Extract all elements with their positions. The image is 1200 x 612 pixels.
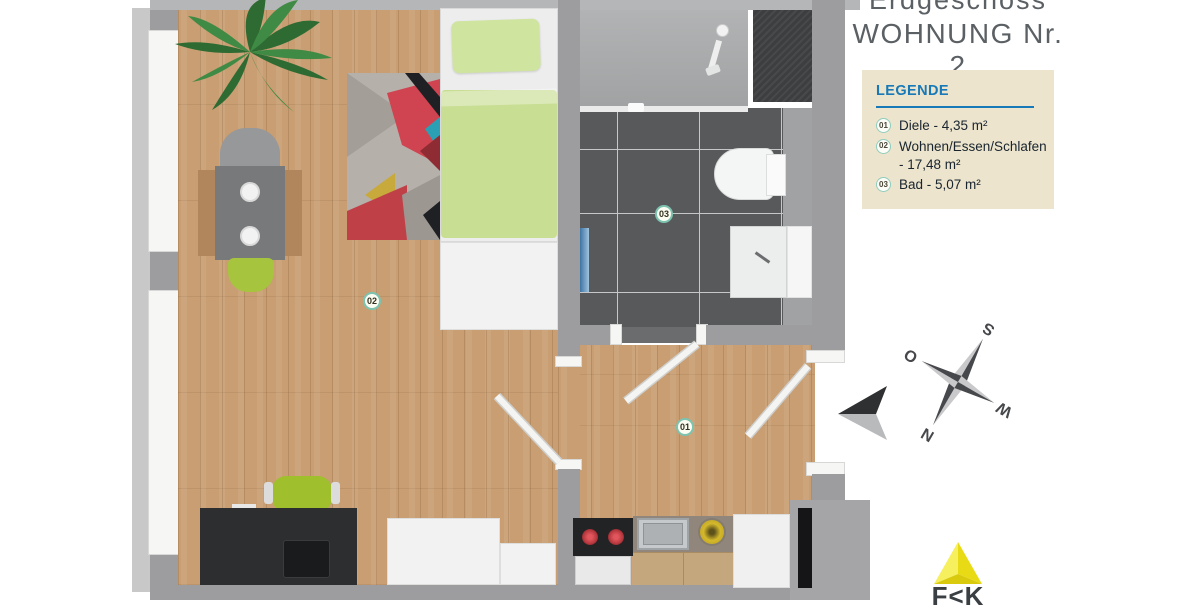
room-badge-03: 03 <box>655 205 673 223</box>
legend-badge-01: 01 <box>876 118 891 133</box>
legend-heading: LEGENDE <box>876 83 1040 99</box>
compass-e: O <box>901 345 920 366</box>
room-badge-02: 02 <box>363 292 381 310</box>
logo-text: F<K <box>922 581 994 612</box>
legend-label-01: Diele - 4,35 m² <box>899 117 1040 135</box>
legend-item: 02 Wohnen/Essen/Schlafen - 17,48 m² <box>876 138 1040 174</box>
logo-triangle-icon <box>932 540 984 586</box>
legend-panel: LEGENDE 01 Diele - 4,35 m² 02 Wohnen/Ess… <box>862 70 1054 209</box>
legend-item: 03 Bad - 5,07 m² <box>876 176 1040 194</box>
legend-badge-03: 03 <box>876 177 891 192</box>
room-badge-01: 01 <box>676 418 694 436</box>
floor-label: Erdgeschoss <box>858 0 1058 16</box>
compass-w: W <box>993 398 1015 421</box>
legend-label-03: Bad - 5,07 m² <box>899 176 1040 194</box>
entrance-arrow-icon <box>836 382 888 444</box>
compass-n: N <box>919 424 938 445</box>
compass-s: S <box>980 318 998 338</box>
legend-label-02: Wohnen/Essen/Schlafen - 17,48 m² <box>899 138 1047 174</box>
floorplan-page: { "header": { "floor_label": "Erdgeschos… <box>0 0 1200 600</box>
compass-rose-icon: N O S W <box>888 312 1028 452</box>
legend-badge-02: 02 <box>876 139 891 154</box>
legend-item: 01 Diele - 4,35 m² <box>876 117 1040 135</box>
legend-divider <box>876 106 1034 108</box>
